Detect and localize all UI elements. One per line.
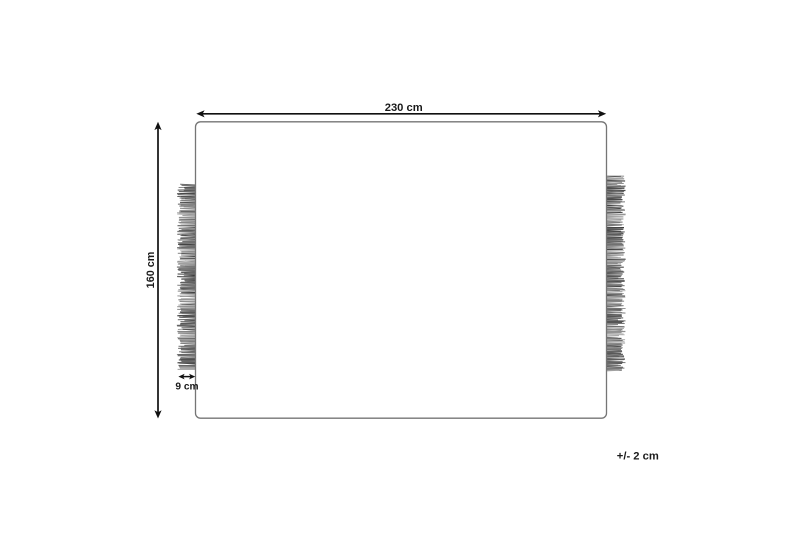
svg-text:9 cm: 9 cm (175, 382, 198, 393)
svg-text:230 cm: 230 cm (385, 102, 423, 114)
svg-text:160 cm: 160 cm (145, 252, 157, 289)
svg-text:+/- 2 cm: +/- 2 cm (617, 451, 659, 463)
